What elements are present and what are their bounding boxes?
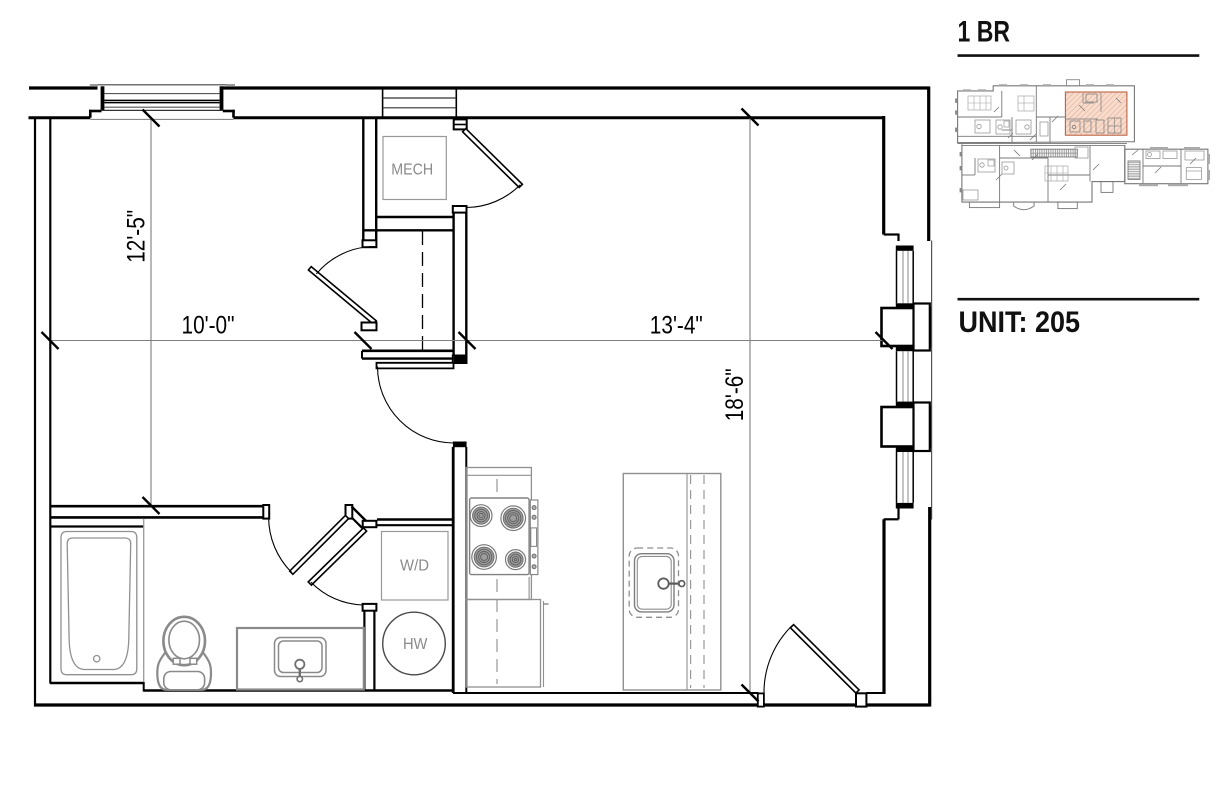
svg-text:12'-5": 12'-5"	[123, 210, 151, 263]
svg-text:MECH: MECH	[391, 162, 433, 179]
svg-text:13'-4": 13'-4"	[650, 311, 703, 339]
svg-text:HW: HW	[403, 636, 428, 653]
svg-text:UNIT: 205: UNIT: 205	[959, 306, 1081, 339]
svg-text:1 BR: 1 BR	[958, 16, 1011, 49]
svg-text:W/D: W/D	[400, 557, 429, 574]
svg-text:10'-0": 10'-0"	[182, 311, 235, 339]
svg-text:18'-6": 18'-6"	[721, 368, 749, 421]
